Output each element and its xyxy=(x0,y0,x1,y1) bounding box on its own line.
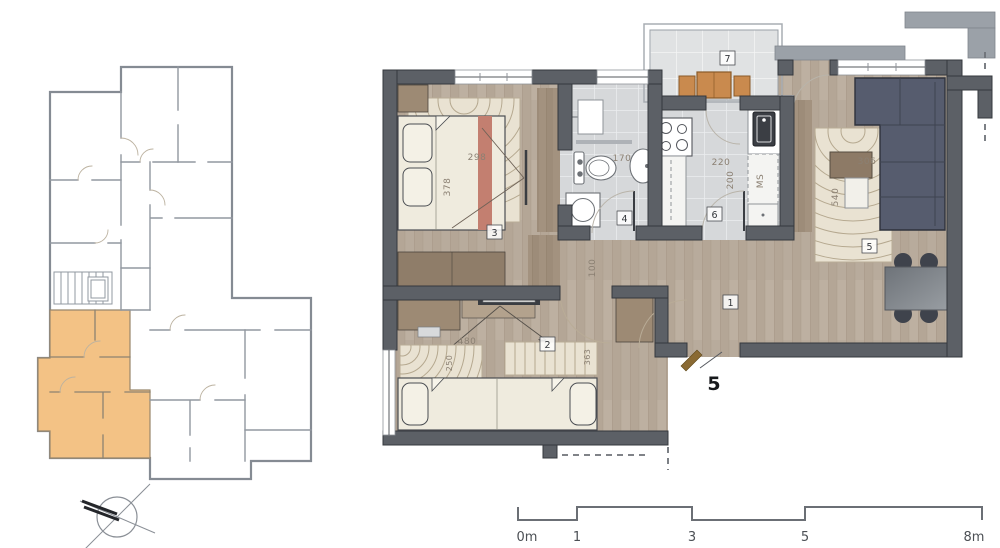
room-label-3: 3 xyxy=(487,225,502,239)
twin-beds xyxy=(398,378,597,430)
svg-text:4: 4 xyxy=(621,214,627,225)
room-label-6: 6 xyxy=(707,207,722,221)
room-label-2: 2 xyxy=(540,337,555,351)
bed-runner xyxy=(478,116,492,230)
north-arrow-compass xyxy=(80,484,155,548)
double-bed xyxy=(398,116,505,230)
room-label-5: 5 xyxy=(862,239,877,253)
window-bedroom1 xyxy=(455,70,532,84)
dim-bedroom2-depth: 363 xyxy=(583,349,592,365)
pillow xyxy=(403,124,432,162)
entrance-unit-number: 5 xyxy=(707,373,720,395)
dining-table xyxy=(885,267,947,310)
window-living xyxy=(838,60,925,75)
scale-bar: 0m 1 3 5 8m xyxy=(517,507,985,545)
svg-text:6: 6 xyxy=(711,210,717,221)
dim-living-rug: 306 xyxy=(858,157,877,167)
scale-label-3: 3 xyxy=(688,530,696,545)
dim-kitchen-d: 200 xyxy=(726,171,736,190)
dim-living: 540 xyxy=(831,188,841,207)
dim-bedroom1-depth: 378 xyxy=(443,178,453,197)
dim-hall-width: 100 xyxy=(588,259,598,278)
window-bedroom2 xyxy=(383,350,395,435)
balcony xyxy=(644,24,782,102)
stairwell xyxy=(54,272,112,304)
balcony-stool-right xyxy=(734,76,750,96)
wardrobe-bedroom2 xyxy=(398,300,460,330)
pillow xyxy=(403,168,432,206)
dim-bedroom2-rug: 250 xyxy=(445,355,454,371)
scale-label-1: 1 xyxy=(573,530,581,545)
dim-bedroom1-width: 298 xyxy=(468,153,487,163)
dim-bedroom2-width: 480 xyxy=(458,337,477,347)
ms-label: MS xyxy=(756,174,766,188)
wardrobe-bedroom1 xyxy=(398,85,428,112)
kitchen-sink xyxy=(753,112,775,146)
svg-text:3: 3 xyxy=(491,228,497,239)
exterior-neighbor-walls xyxy=(775,12,995,60)
building-overview-plan xyxy=(38,67,311,479)
room-label-4: 4 xyxy=(617,211,632,225)
svg-text:1: 1 xyxy=(727,298,733,309)
corridor-strip xyxy=(537,88,560,232)
towel-rail xyxy=(576,140,632,144)
scale-label-8m: 8m xyxy=(964,530,985,545)
svg-text:2: 2 xyxy=(544,340,550,351)
scale-label-5: 5 xyxy=(801,530,809,545)
floor-plan-canvas: 298 378 480 250 363 100 xyxy=(0,0,1000,548)
mirror-cabinet xyxy=(578,100,603,134)
dim-bathroom: 170 xyxy=(613,154,632,164)
floor-plan-page: 298 378 480 250 363 100 xyxy=(0,0,1000,548)
balcony-stool-left xyxy=(679,76,695,96)
apartment-plan: 298 378 480 250 363 100 xyxy=(321,0,995,470)
pillow xyxy=(402,383,428,425)
entry-strip xyxy=(794,100,812,232)
scale-label-0m: 0m xyxy=(517,530,538,545)
hall-floor xyxy=(558,225,795,357)
svg-text:5: 5 xyxy=(866,242,872,253)
room-label-7: 7 xyxy=(720,51,735,65)
svg-text:7: 7 xyxy=(724,54,730,65)
dim-kitchen-w: 220 xyxy=(712,158,731,168)
window-bathroom xyxy=(597,70,648,84)
room-label-1: 1 xyxy=(723,295,738,309)
wall-shelf xyxy=(418,327,440,337)
pillow xyxy=(570,383,596,425)
